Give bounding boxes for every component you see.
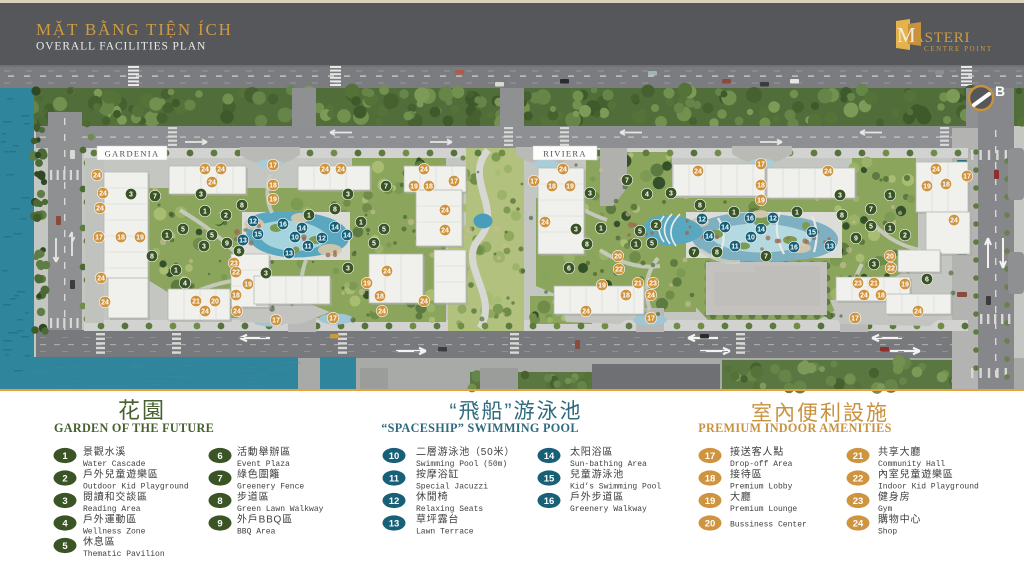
svg-text:24: 24 (950, 218, 958, 225)
svg-text:23: 23 (853, 496, 864, 507)
svg-text:5: 5 (869, 224, 873, 231)
svg-text:20: 20 (614, 254, 622, 261)
svg-text:24: 24 (321, 167, 329, 174)
svg-text:Green Lawn Walkway: Green Lawn Walkway (237, 505, 324, 514)
svg-text:24: 24 (217, 167, 225, 174)
svg-text:18: 18 (376, 294, 384, 301)
svg-text:13: 13 (389, 518, 400, 529)
svg-text:16: 16 (790, 245, 798, 252)
svg-text:1: 1 (174, 268, 178, 275)
svg-text:15: 15 (254, 232, 262, 239)
svg-text:24: 24 (96, 206, 104, 213)
svg-text:18: 18 (548, 184, 556, 191)
svg-text:7: 7 (153, 194, 157, 201)
svg-text:Reading Area: Reading Area (83, 505, 141, 514)
svg-text:休閒椅: 休閒椅 (416, 490, 448, 503)
svg-text:接送客人點: 接送客人點 (730, 445, 784, 458)
svg-text:1: 1 (599, 226, 603, 233)
svg-text:21: 21 (853, 451, 864, 462)
svg-text:1: 1 (888, 226, 892, 233)
svg-text:2: 2 (224, 213, 228, 220)
svg-text:GARDEN OF THE FUTURE: GARDEN OF THE FUTURE (54, 421, 214, 435)
svg-text:Swimming Pool (50m): Swimming Pool (50m) (416, 460, 507, 469)
svg-text:3: 3 (588, 191, 592, 198)
svg-text:24: 24 (914, 309, 922, 316)
svg-text:10: 10 (291, 235, 299, 242)
svg-text:24: 24 (233, 309, 241, 316)
svg-text:戶外兒童遊樂區: 戶外兒童遊樂區 (83, 468, 159, 481)
svg-text:Premium Lounge: Premium Lounge (730, 505, 797, 514)
svg-text:19: 19 (136, 235, 144, 242)
svg-text:24: 24 (559, 167, 567, 174)
svg-text:21: 21 (192, 299, 200, 306)
svg-text:12: 12 (389, 496, 400, 507)
svg-text:23: 23 (854, 281, 862, 288)
svg-text:GARDENIA: GARDENIA (105, 149, 160, 159)
svg-text:18: 18 (622, 293, 630, 300)
svg-text:10: 10 (389, 451, 400, 462)
svg-text:22: 22 (232, 270, 240, 277)
svg-text:20: 20 (211, 299, 219, 306)
svg-text:2: 2 (62, 473, 67, 484)
svg-text:1: 1 (359, 220, 363, 227)
svg-text:1: 1 (203, 209, 207, 216)
svg-text:21: 21 (870, 281, 878, 288)
svg-text:24: 24 (860, 293, 868, 300)
svg-text:24: 24 (441, 228, 449, 235)
svg-text:9: 9 (217, 518, 222, 529)
svg-text:20: 20 (886, 254, 894, 261)
svg-text:24: 24 (337, 167, 345, 174)
svg-text:Relaxing Seats: Relaxing Seats (416, 505, 483, 514)
svg-text:14: 14 (343, 233, 351, 240)
svg-text:1: 1 (888, 193, 892, 200)
svg-text:1: 1 (165, 233, 169, 240)
svg-text:19: 19 (705, 496, 716, 507)
svg-text:Drop-off Area: Drop-off Area (730, 460, 793, 469)
svg-text:24: 24 (208, 180, 216, 187)
svg-text:Gym: Gym (878, 505, 893, 514)
svg-text:6: 6 (567, 266, 571, 273)
svg-text:24: 24 (97, 276, 105, 283)
svg-text:24: 24 (201, 309, 209, 316)
svg-text:8: 8 (585, 242, 589, 249)
svg-text:Greenery Walkway: Greenery Walkway (570, 505, 647, 514)
svg-text:24: 24 (93, 173, 101, 180)
svg-text:Outdoor Kid Playground: Outdoor Kid Playground (83, 483, 189, 492)
svg-text:太阳浴區: 太阳浴區 (570, 445, 613, 458)
svg-text:11: 11 (731, 244, 739, 251)
svg-text:15: 15 (808, 230, 816, 237)
svg-text:12: 12 (249, 219, 257, 226)
svg-text:草坪露台: 草坪露台 (416, 513, 459, 526)
svg-text:3: 3 (574, 227, 578, 234)
svg-text:2: 2 (903, 233, 907, 240)
svg-text:RIVIERA: RIVIERA (543, 149, 587, 159)
svg-text:1: 1 (732, 210, 736, 217)
svg-text:18: 18 (269, 183, 277, 190)
svg-text:休息區: 休息區 (83, 535, 115, 548)
svg-text:“SPACESHIP” SWIMMING POOL: “SPACESHIP” SWIMMING POOL (381, 421, 579, 435)
svg-text:13: 13 (239, 238, 247, 245)
svg-text:19: 19 (757, 198, 765, 205)
svg-text:17: 17 (450, 179, 458, 186)
svg-text:19: 19 (410, 184, 418, 191)
svg-text:9: 9 (225, 241, 229, 248)
svg-text:7: 7 (217, 473, 222, 484)
svg-text:17: 17 (269, 163, 277, 170)
svg-text:13: 13 (285, 251, 293, 258)
svg-text:戶外運動區: 戶外運動區 (83, 513, 137, 526)
svg-text:23: 23 (649, 281, 657, 288)
svg-text:7: 7 (692, 250, 696, 257)
svg-text:3: 3 (872, 262, 876, 269)
svg-text:24: 24 (201, 167, 209, 174)
svg-text:健身房: 健身房 (878, 490, 910, 503)
svg-text:6: 6 (925, 277, 929, 284)
svg-text:步道區: 步道區 (237, 490, 269, 503)
svg-text:6: 6 (217, 451, 222, 462)
svg-text:OVERALL FACILITIES PLAN: OVERALL FACILITIES PLAN (36, 41, 206, 53)
svg-text:Kid’s Swimming Pool: Kid’s Swimming Pool (570, 483, 661, 492)
svg-text:花園: 花園 (118, 398, 166, 423)
svg-text:17: 17 (95, 235, 103, 242)
svg-text:BBQ Area: BBQ Area (237, 528, 276, 537)
svg-text:5: 5 (372, 241, 376, 248)
svg-text:11: 11 (304, 244, 312, 251)
svg-text:3: 3 (62, 496, 67, 507)
svg-text:19: 19 (363, 281, 371, 288)
svg-text:1: 1 (795, 210, 799, 217)
svg-text:5: 5 (382, 227, 386, 234)
svg-text:內室兒童遊樂區: 內室兒童遊樂區 (878, 468, 954, 481)
svg-text:5: 5 (62, 541, 68, 552)
svg-text:7: 7 (764, 254, 768, 261)
svg-text:7: 7 (869, 207, 873, 214)
svg-text:19: 19 (901, 282, 909, 289)
svg-text:17: 17 (329, 316, 337, 323)
svg-text:Sun-bathing Area: Sun-bathing Area (570, 460, 647, 469)
svg-text:5: 5 (210, 233, 214, 240)
svg-text:二層游泳池（50米）: 二層游泳池（50米） (416, 445, 515, 458)
svg-text:3: 3 (129, 192, 133, 199)
svg-text:18: 18 (117, 235, 125, 242)
svg-text:景觀水溪: 景觀水溪 (83, 446, 126, 458)
svg-text:24: 24 (824, 169, 832, 176)
svg-text:3: 3 (669, 191, 673, 198)
svg-text:7: 7 (625, 178, 629, 185)
svg-text:24: 24 (441, 208, 449, 215)
svg-text:綠色圍籬: 綠色圍籬 (237, 468, 280, 481)
svg-text:16: 16 (544, 496, 555, 507)
svg-text:Water Cascade: Water Cascade (83, 460, 146, 469)
svg-text:17: 17 (272, 318, 280, 325)
svg-text:1: 1 (62, 451, 68, 462)
svg-text:PREMIUM INDOOR AMENITIES: PREMIUM INDOOR AMENITIES (698, 421, 891, 435)
svg-text:共享大廳: 共享大廳 (878, 445, 921, 458)
svg-text:14: 14 (544, 451, 555, 462)
svg-text:24: 24 (383, 269, 391, 276)
svg-text:22: 22 (887, 266, 895, 273)
svg-text:MẶT BẰNG TIỆN ÍCH: MẶT BẰNG TIỆN ÍCH (36, 20, 233, 39)
svg-text:3: 3 (199, 192, 203, 199)
svg-text:24: 24 (694, 169, 702, 176)
svg-text:24: 24 (420, 167, 428, 174)
svg-text:Lawn Terrace: Lawn Terrace (416, 528, 474, 537)
svg-text:10: 10 (747, 235, 755, 242)
svg-text:24: 24 (932, 167, 940, 174)
svg-text:18: 18 (232, 293, 240, 300)
svg-text:Special Jacuzzi: Special Jacuzzi (416, 483, 488, 492)
svg-text:19: 19 (923, 184, 931, 191)
svg-text:19: 19 (269, 197, 277, 204)
svg-text:15: 15 (544, 473, 555, 484)
svg-text:19: 19 (598, 283, 606, 290)
svg-text:22: 22 (853, 473, 864, 484)
svg-text:12: 12 (769, 216, 777, 223)
svg-text:8: 8 (333, 207, 337, 214)
svg-text:13: 13 (826, 244, 834, 251)
svg-text:Wellness Zone: Wellness Zone (83, 528, 146, 537)
svg-text:7: 7 (384, 184, 388, 191)
svg-text:16: 16 (279, 222, 287, 229)
svg-text:17: 17 (851, 316, 859, 323)
svg-text:11: 11 (389, 473, 400, 484)
svg-text:Event Plaza: Event Plaza (237, 460, 290, 469)
svg-text:ASTERI: ASTERI (913, 30, 970, 46)
svg-text:8: 8 (840, 213, 844, 220)
svg-text:8: 8 (715, 250, 719, 257)
svg-text:20: 20 (705, 518, 716, 529)
svg-text:24: 24 (853, 518, 864, 529)
svg-text:5: 5 (650, 241, 654, 248)
svg-text:17: 17 (647, 316, 655, 323)
svg-text:大廳: 大廳 (730, 490, 752, 503)
svg-text:24: 24 (582, 309, 590, 316)
svg-text:外戶BBQ區: 外戶BBQ區 (237, 514, 293, 526)
svg-text:14: 14 (705, 234, 713, 241)
svg-text:17: 17 (963, 174, 971, 181)
svg-text:14: 14 (757, 227, 765, 234)
svg-text:兒童游泳池: 兒童游泳池 (570, 468, 624, 481)
svg-text:4: 4 (645, 192, 649, 199)
svg-text:3: 3 (202, 244, 206, 251)
svg-text:24: 24 (378, 309, 386, 316)
svg-text:閱讀和交談區: 閱讀和交談區 (83, 490, 148, 503)
svg-text:21: 21 (634, 281, 642, 288)
svg-text:1: 1 (307, 213, 311, 220)
svg-text:Thematic Pavilion: Thematic Pavilion (83, 550, 165, 559)
svg-text:Shop: Shop (878, 528, 897, 537)
svg-text:8: 8 (237, 249, 241, 256)
svg-text:24: 24 (99, 191, 107, 198)
svg-text:18: 18 (425, 184, 433, 191)
svg-text:8: 8 (240, 203, 244, 210)
svg-text:17: 17 (757, 162, 765, 169)
svg-text:按摩浴缸: 按摩浴缸 (416, 468, 459, 481)
svg-text:3: 3 (838, 193, 842, 200)
svg-text:12: 12 (698, 217, 706, 224)
svg-text:19: 19 (244, 282, 252, 289)
svg-text:5: 5 (638, 229, 642, 236)
svg-text:14: 14 (721, 225, 729, 232)
svg-text:17: 17 (530, 179, 538, 186)
svg-text:Premium Lobby: Premium Lobby (730, 483, 793, 492)
svg-text:8: 8 (150, 254, 154, 261)
svg-text:24: 24 (541, 220, 549, 227)
svg-text:Indoor Kid Playground: Indoor Kid Playground (878, 483, 979, 492)
svg-text:B: B (995, 83, 1005, 99)
svg-text:18: 18 (877, 293, 885, 300)
svg-text:戶外步道區: 戶外步道區 (570, 490, 624, 503)
svg-text:2: 2 (654, 223, 658, 230)
svg-text:16: 16 (746, 216, 754, 223)
svg-text:9: 9 (854, 236, 858, 243)
svg-text:24: 24 (647, 293, 655, 300)
svg-text:接待區: 接待區 (730, 468, 762, 481)
svg-text:14: 14 (331, 225, 339, 232)
svg-text:24: 24 (101, 300, 109, 307)
svg-text:17: 17 (705, 451, 716, 462)
svg-text:“飛船”游泳池: “飛船”游泳池 (450, 400, 583, 423)
svg-text:4: 4 (183, 281, 187, 288)
svg-text:18: 18 (757, 183, 765, 190)
svg-text:4: 4 (62, 518, 68, 529)
svg-text:12: 12 (318, 236, 326, 243)
svg-text:5: 5 (181, 227, 185, 234)
svg-text:22: 22 (615, 267, 623, 274)
svg-text:Bussiness Center: Bussiness Center (730, 521, 807, 530)
svg-text:8: 8 (698, 203, 702, 210)
svg-text:3: 3 (346, 266, 350, 273)
svg-text:3: 3 (264, 271, 268, 278)
svg-text:活動舉辦區: 活動舉辦區 (237, 445, 291, 458)
svg-text:18: 18 (942, 182, 950, 189)
svg-text:24: 24 (420, 299, 428, 306)
svg-text:1: 1 (634, 242, 638, 249)
svg-text:購物中心: 購物中心 (878, 513, 921, 526)
svg-text:19: 19 (566, 184, 574, 191)
svg-text:3: 3 (346, 192, 350, 199)
svg-text:18: 18 (705, 473, 716, 484)
svg-text:CENTRE POINT: CENTRE POINT (924, 45, 993, 53)
svg-text:14: 14 (298, 226, 306, 233)
svg-text:Community Hall: Community Hall (878, 460, 945, 469)
svg-text:8: 8 (217, 496, 222, 507)
svg-text:Greenery Fence: Greenery Fence (237, 483, 304, 492)
